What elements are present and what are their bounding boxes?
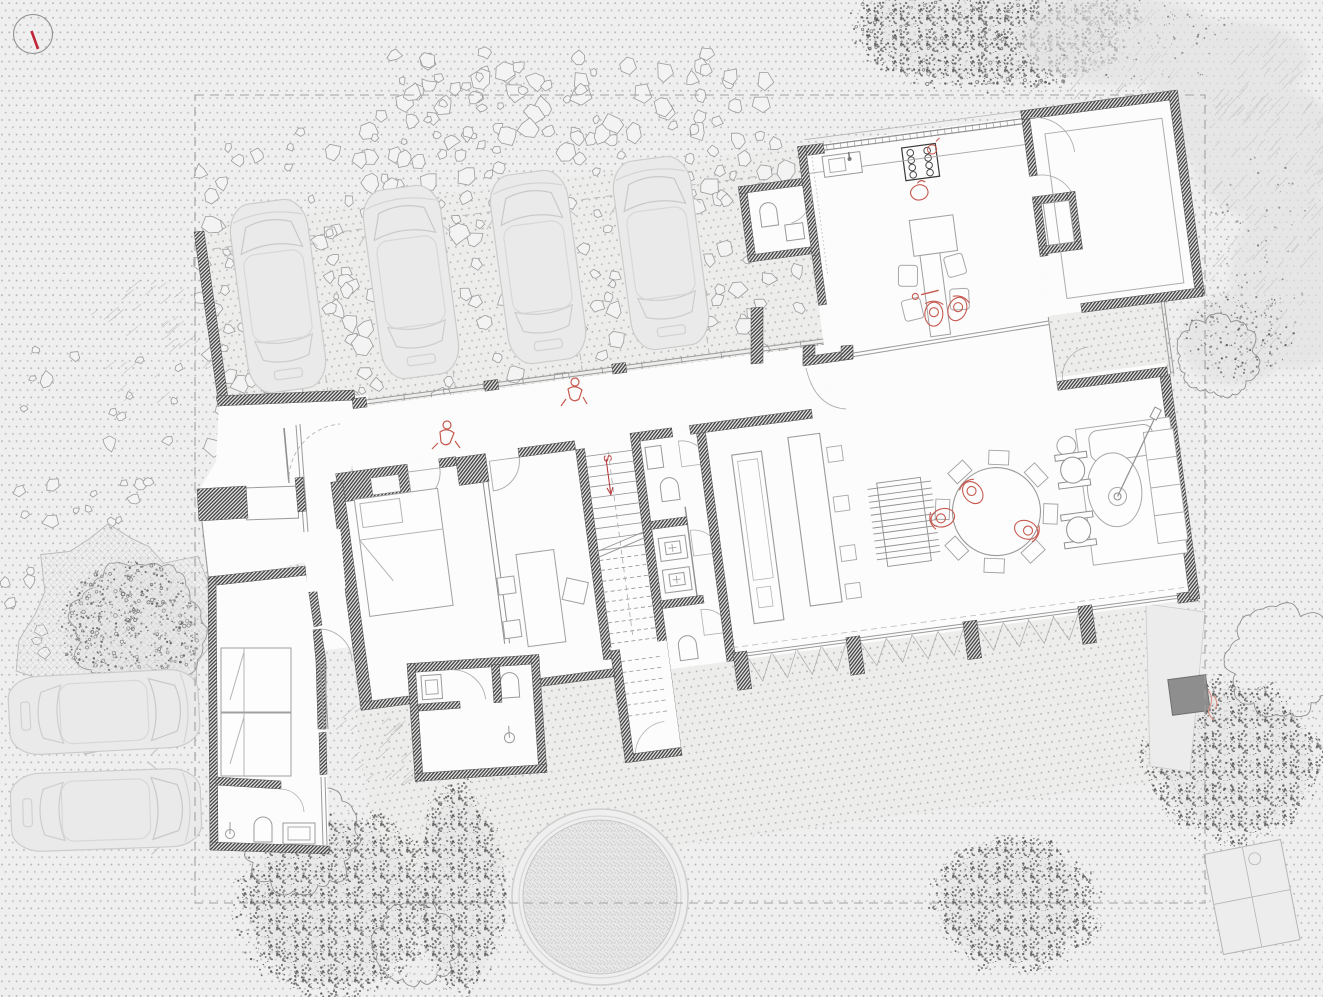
svg-text:S: S <box>601 454 614 463</box>
